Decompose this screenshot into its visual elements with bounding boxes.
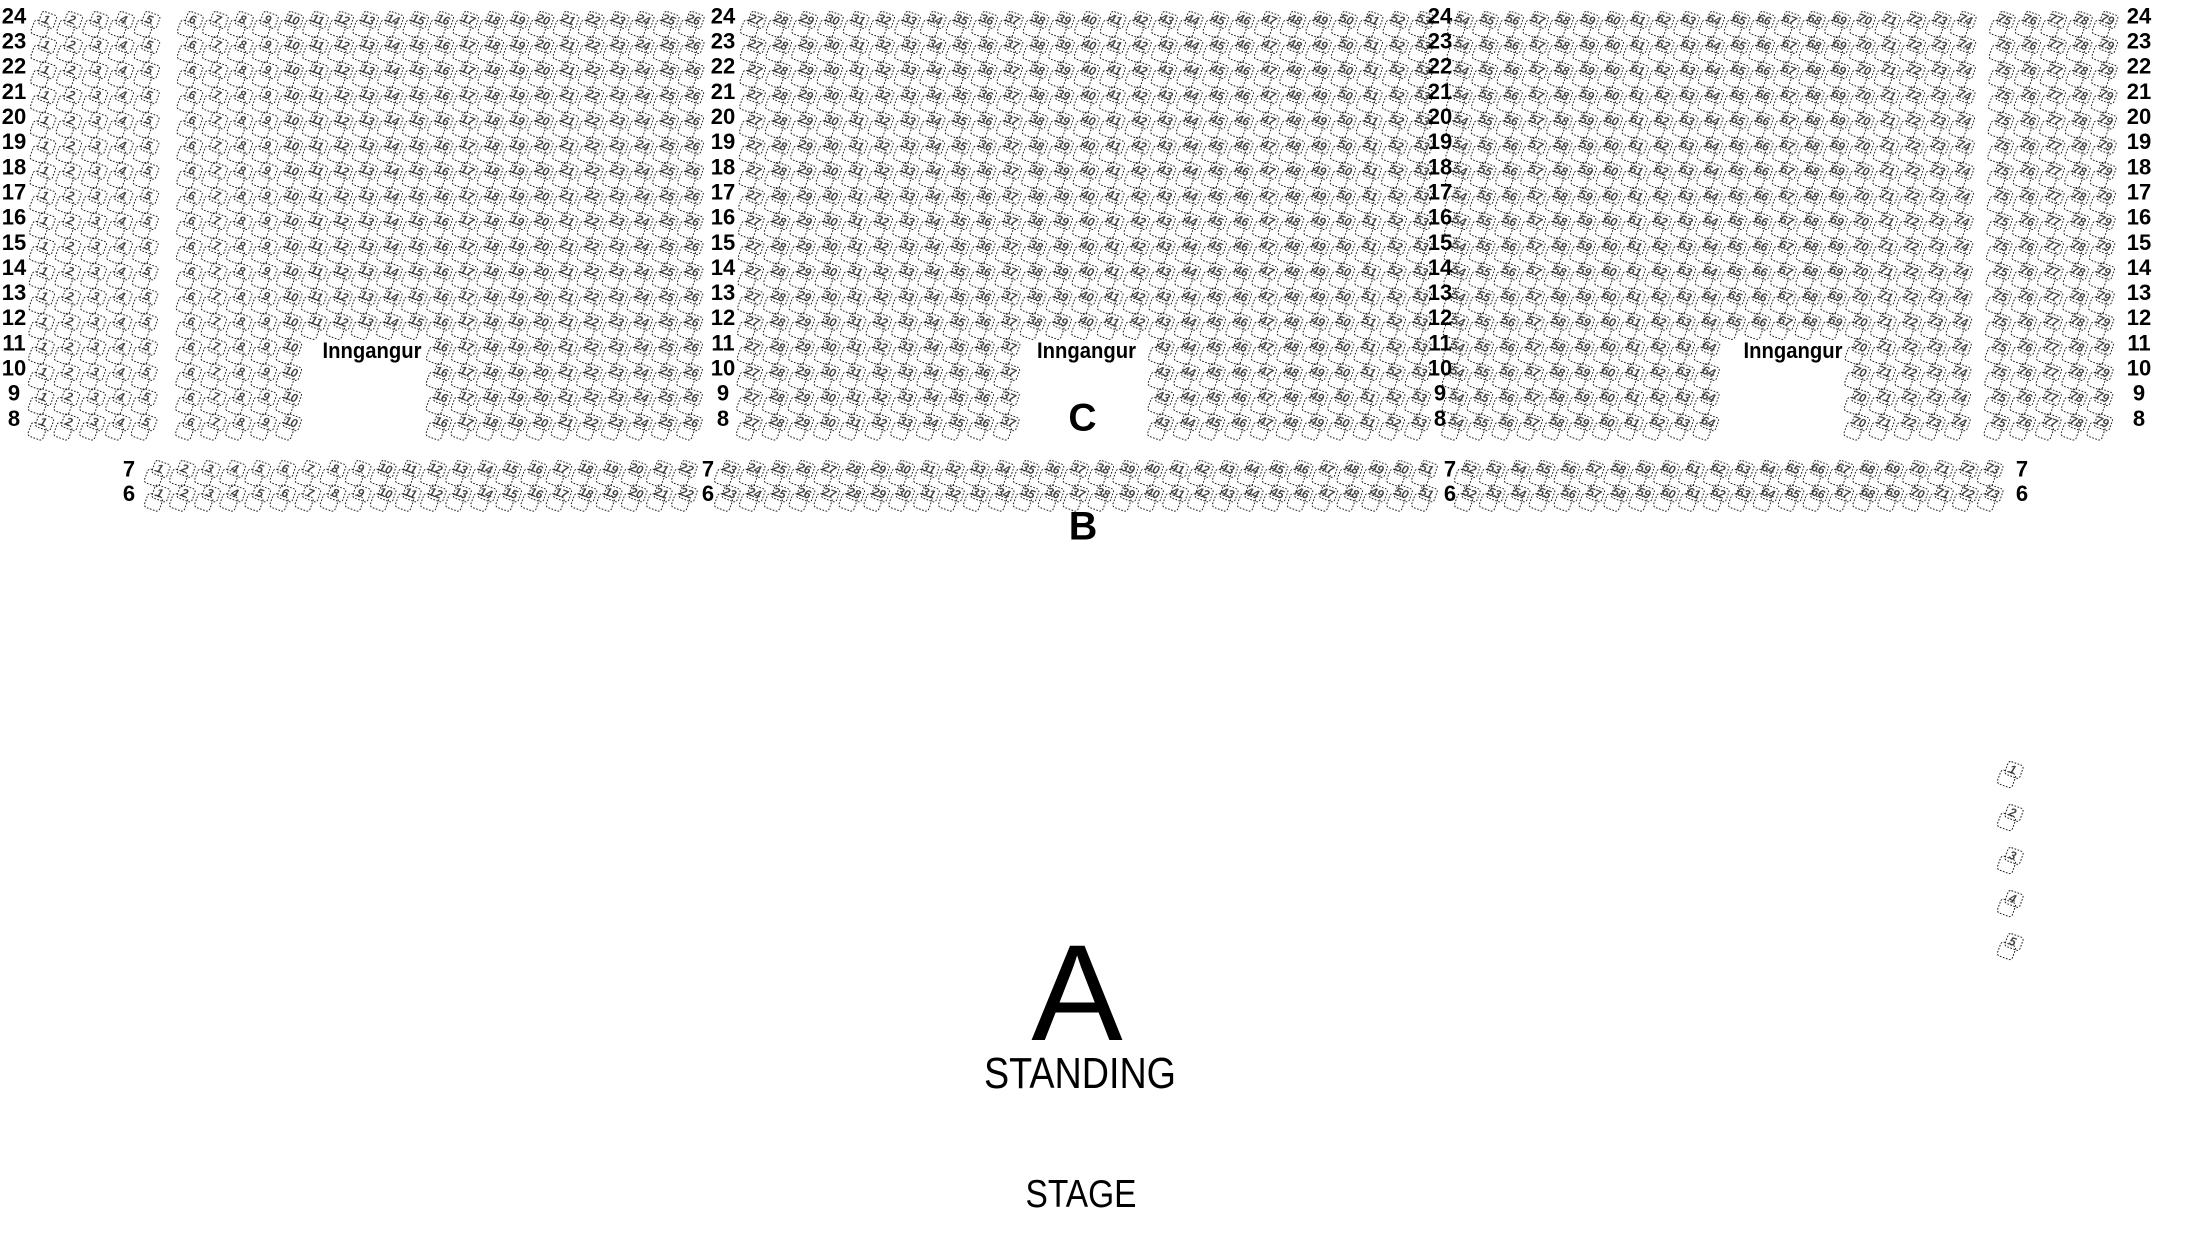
svg-text:13: 13 (1428, 280, 1452, 305)
svg-text:6: 6 (2016, 481, 2028, 506)
svg-text:8: 8 (8, 406, 20, 431)
svg-text:16: 16 (2, 205, 26, 230)
svg-text:23: 23 (2, 29, 26, 54)
svg-text:STANDING: STANDING (984, 1049, 1176, 1098)
svg-text:15: 15 (711, 230, 735, 255)
svg-text:18: 18 (1428, 154, 1452, 179)
svg-text:22: 22 (711, 54, 735, 79)
svg-text:10: 10 (1428, 356, 1452, 381)
svg-text:18: 18 (711, 154, 735, 179)
svg-text:18: 18 (2127, 154, 2151, 179)
svg-text:10: 10 (2127, 356, 2151, 381)
svg-text:C: C (1068, 397, 1096, 440)
svg-text:16: 16 (1428, 205, 1452, 230)
svg-text:STAGE: STAGE (1026, 1173, 1137, 1216)
svg-text:15: 15 (2, 230, 26, 255)
svg-text:7: 7 (2016, 457, 2028, 482)
svg-text:24: 24 (711, 3, 736, 28)
svg-text:23: 23 (2127, 29, 2151, 54)
svg-text:20: 20 (2, 104, 26, 129)
svg-text:23: 23 (711, 29, 735, 54)
svg-text:15: 15 (1428, 230, 1452, 255)
svg-text:8: 8 (1434, 406, 1446, 431)
svg-text:7: 7 (1444, 457, 1456, 482)
svg-text:11: 11 (2, 330, 25, 355)
svg-text:21: 21 (1428, 79, 1452, 104)
svg-text:17: 17 (2127, 179, 2151, 204)
svg-text:7: 7 (123, 457, 135, 482)
svg-text:21: 21 (2, 79, 26, 104)
svg-text:6: 6 (702, 481, 714, 506)
svg-text:14: 14 (2127, 255, 2152, 280)
svg-text:22: 22 (2127, 54, 2151, 79)
svg-text:17: 17 (2, 179, 26, 204)
svg-text:9: 9 (717, 381, 729, 406)
svg-text:6: 6 (123, 481, 135, 506)
svg-text:20: 20 (2127, 104, 2151, 129)
svg-text:14: 14 (1428, 255, 1453, 280)
svg-text:6: 6 (1444, 481, 1456, 506)
svg-text:13: 13 (2127, 280, 2151, 305)
svg-text:18: 18 (2, 154, 26, 179)
svg-text:22: 22 (2, 54, 26, 79)
svg-text:20: 20 (1428, 104, 1452, 129)
svg-text:13: 13 (2, 280, 26, 305)
svg-text:11: 11 (711, 330, 734, 355)
svg-text:24: 24 (2, 3, 27, 28)
svg-text:13: 13 (711, 280, 735, 305)
svg-text:8: 8 (2133, 406, 2145, 431)
svg-text:12: 12 (1428, 305, 1452, 330)
svg-text:24: 24 (1428, 3, 1453, 28)
svg-text:12: 12 (2, 305, 26, 330)
svg-text:15: 15 (2127, 230, 2151, 255)
svg-text:9: 9 (1434, 381, 1446, 406)
svg-text:22: 22 (1428, 54, 1452, 79)
svg-text:Inngangur: Inngangur (1744, 338, 1843, 363)
svg-text:19: 19 (1428, 129, 1452, 154)
svg-text:14: 14 (711, 255, 736, 280)
svg-text:19: 19 (711, 129, 735, 154)
svg-text:19: 19 (2127, 129, 2151, 154)
svg-text:19: 19 (2, 129, 26, 154)
svg-text:11: 11 (1428, 330, 1451, 355)
svg-text:11: 11 (2127, 330, 2150, 355)
svg-text:7: 7 (702, 457, 714, 482)
svg-text:21: 21 (2127, 79, 2151, 104)
svg-text:A: A (1031, 917, 1123, 1070)
svg-text:20: 20 (711, 104, 735, 129)
svg-text:24: 24 (2127, 3, 2152, 28)
svg-text:16: 16 (711, 205, 735, 230)
svg-text:12: 12 (711, 305, 735, 330)
svg-text:B: B (1069, 505, 1098, 549)
svg-text:Inngangur: Inngangur (323, 338, 422, 363)
svg-text:17: 17 (1428, 179, 1452, 204)
svg-text:16: 16 (2127, 205, 2151, 230)
svg-text:9: 9 (8, 381, 20, 406)
svg-text:14: 14 (2, 255, 27, 280)
svg-text:Inngangur: Inngangur (1037, 338, 1136, 363)
svg-text:23: 23 (1428, 29, 1452, 54)
svg-text:10: 10 (711, 356, 735, 381)
svg-text:9: 9 (2133, 381, 2145, 406)
svg-text:12: 12 (2127, 305, 2151, 330)
svg-text:17: 17 (711, 179, 735, 204)
svg-text:10: 10 (2, 356, 26, 381)
svg-text:21: 21 (711, 79, 735, 104)
svg-text:8: 8 (717, 406, 729, 431)
